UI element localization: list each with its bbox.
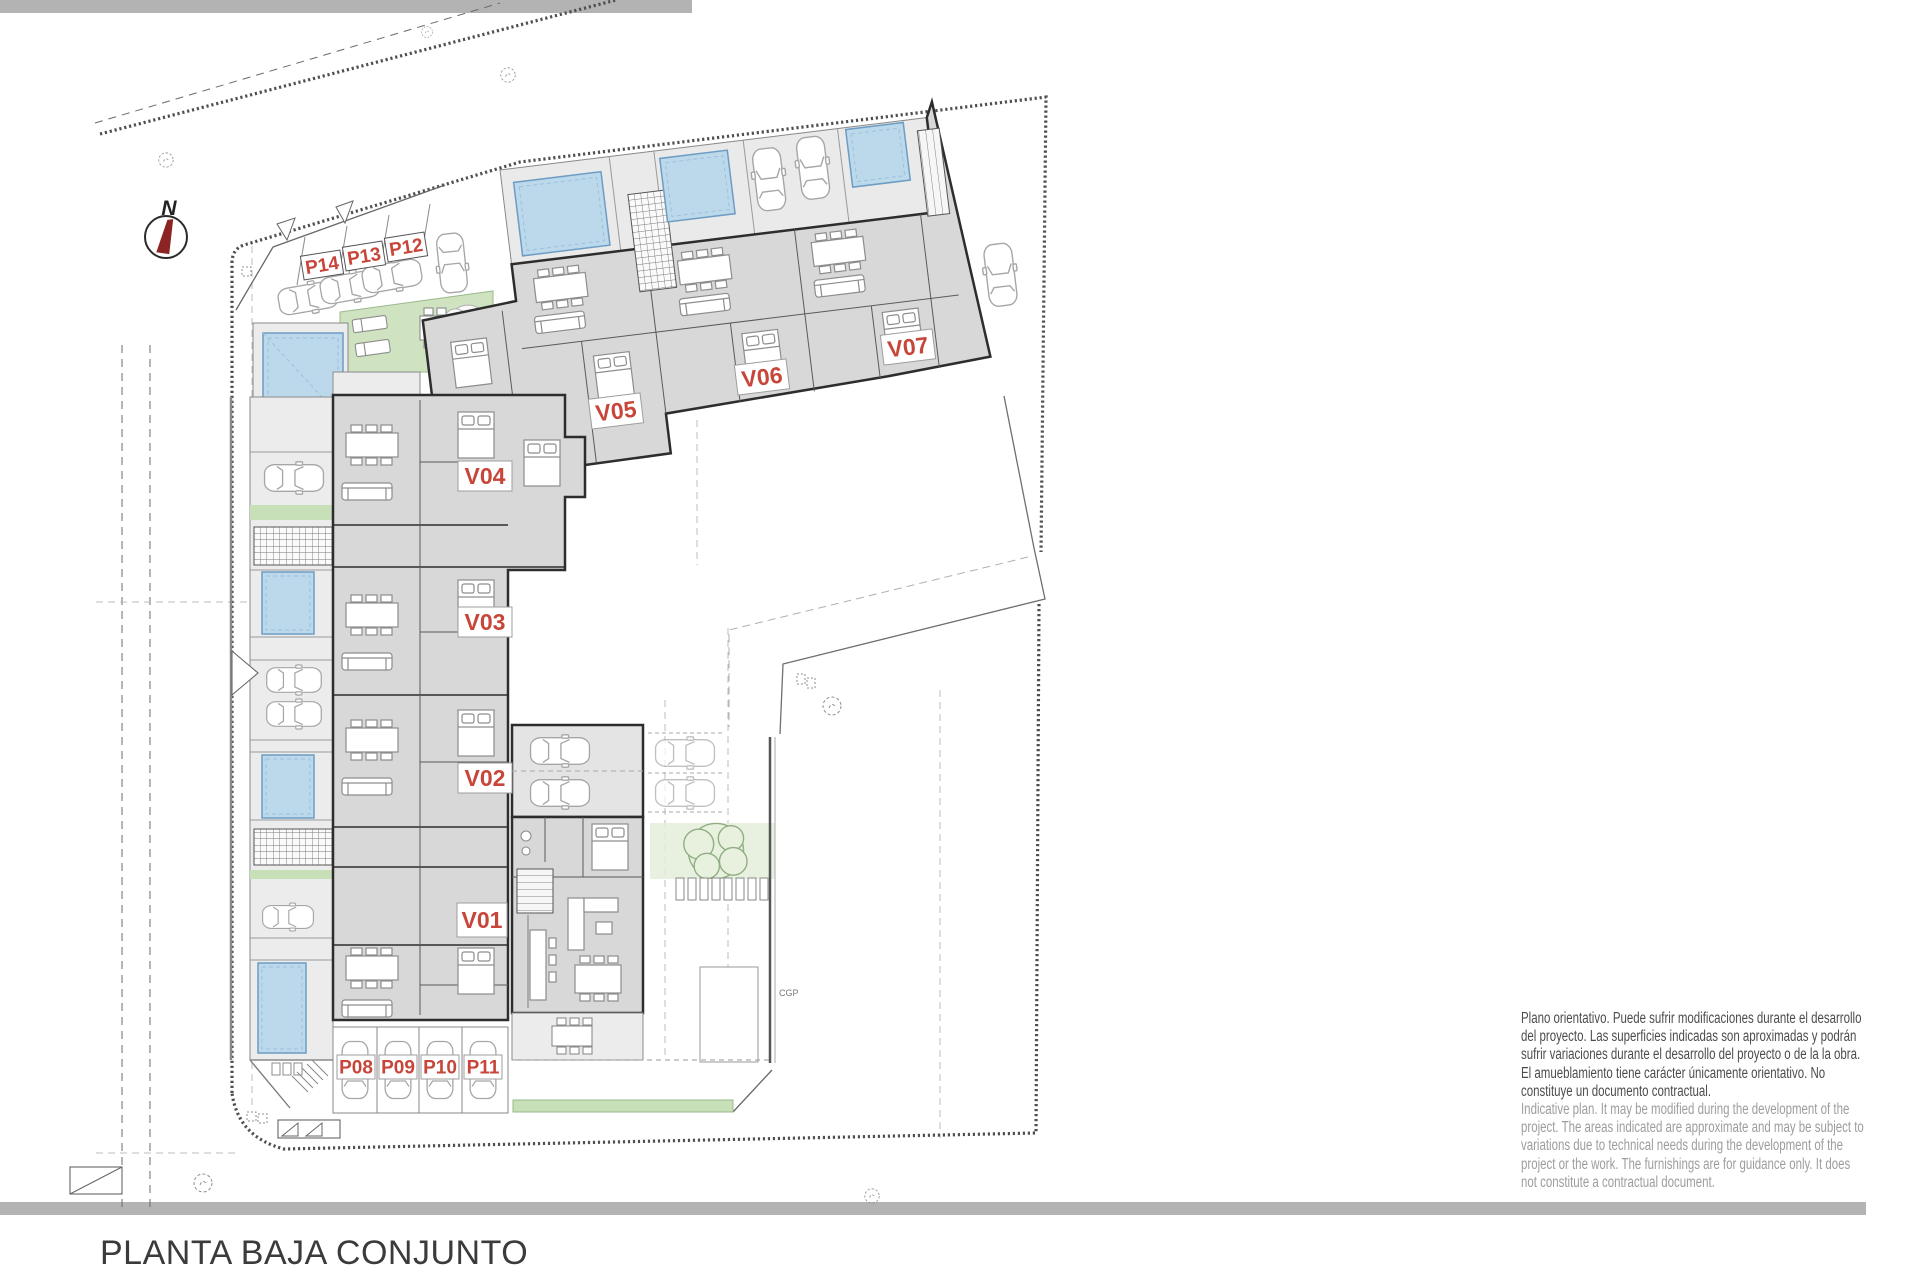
south-villa: CGP — [512, 725, 799, 1112]
manhole-icon — [501, 68, 515, 82]
hedge — [250, 870, 333, 879]
car-icon — [656, 737, 715, 769]
car-icon — [531, 777, 590, 809]
manhole-icon — [194, 1174, 212, 1192]
manhole-icon — [422, 27, 433, 38]
svg-text:V07: V07 — [886, 332, 930, 363]
utility-box-icon — [242, 267, 251, 276]
parking-label-p09: P09 — [379, 1055, 417, 1079]
svg-text:V03: V03 — [465, 609, 506, 635]
svg-text:V06: V06 — [740, 362, 784, 393]
hedge — [250, 505, 333, 520]
svg-text:V02: V02 — [465, 765, 506, 791]
unit-label-v06: V06 — [734, 359, 789, 395]
gate-triangle-icon — [277, 218, 295, 240]
svg-text:P11: P11 — [467, 1058, 500, 1079]
svg-text:V04: V04 — [465, 463, 506, 489]
outdoor-stair — [292, 1060, 328, 1092]
unit-label-v02: V02 — [458, 763, 512, 793]
manhole-icon — [865, 1189, 879, 1203]
parking-label-p11: P11 — [464, 1055, 502, 1079]
disclaimer-block: Plano orientativo. Puede sufrir modifica… — [1521, 1010, 1864, 1192]
svg-text:P08: P08 — [339, 1058, 373, 1079]
car-icon — [267, 699, 322, 729]
north-compass: N — [145, 197, 187, 258]
svg-text:V05: V05 — [594, 396, 638, 427]
car-icon — [265, 462, 324, 494]
unit-label-v04: V04 — [458, 461, 512, 491]
parking-label-p10: P10 — [421, 1055, 459, 1079]
floor-plan-page: { "page": { "title": "PLANTA BAJA CONJUN… — [0, 0, 1920, 1280]
bed-icon — [592, 824, 628, 870]
car-icon — [531, 735, 590, 767]
top-road-fence — [100, 0, 616, 134]
car-icon — [980, 242, 1021, 308]
disclaimer-es: Plano orientativo. Puede sufrir modifica… — [1521, 1010, 1864, 1101]
parking-label-p08: P08 — [337, 1055, 375, 1079]
lawn-panel — [700, 967, 758, 1062]
parking-label-p12: P12 — [384, 232, 427, 262]
manhole-icon — [823, 697, 841, 715]
svg-text:P10: P10 — [423, 1058, 457, 1079]
svg-text:P09: P09 — [381, 1058, 415, 1079]
svg-text:V01: V01 — [462, 907, 503, 933]
car-icon — [656, 777, 715, 809]
manhole-icon — [159, 153, 173, 167]
courtyard-boundary — [729, 396, 1045, 734]
dining-table — [575, 956, 621, 1001]
cgp-annotation: CGP — [779, 988, 799, 998]
car-icon — [267, 665, 322, 695]
outdoor-table — [552, 1018, 592, 1054]
plan-title: PLANTA BAJA CONJUNTO — [100, 1234, 528, 1273]
car-icon — [433, 232, 471, 294]
car-icon — [263, 903, 314, 931]
north-label: N — [161, 197, 177, 220]
pergola — [676, 878, 768, 900]
unit-label-v03: V03 — [458, 607, 512, 637]
unit-label-v07: V07 — [880, 329, 935, 365]
stair — [517, 869, 553, 913]
unit-label-v01: V01 — [457, 903, 507, 937]
grass-verge — [513, 1100, 733, 1112]
disclaimer-en: Indicative plan. It may be modified duri… — [1521, 1101, 1864, 1192]
top-road-edge — [95, 3, 500, 123]
unit-label-v05: V05 — [588, 393, 643, 429]
